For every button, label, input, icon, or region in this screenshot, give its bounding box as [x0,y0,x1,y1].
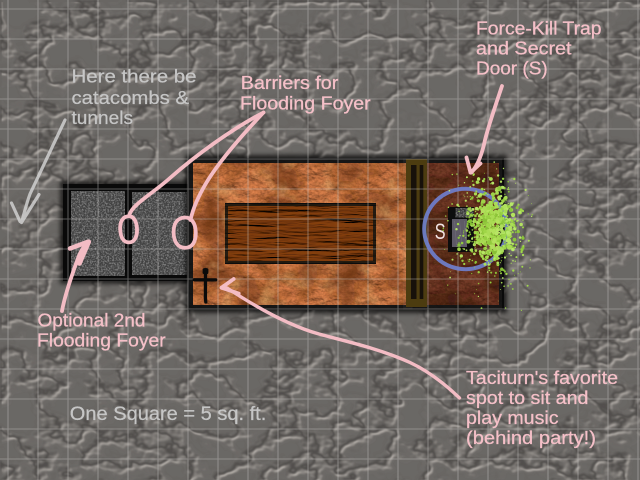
svg-text:play music: play music [466,407,559,428]
svg-text:Force-Kill Trap: Force-Kill Trap [476,17,602,38]
svg-text:S: S [435,219,446,244]
svg-text:Door (S): Door (S) [476,57,548,78]
svg-text:Flooding Foyer: Flooding Foyer [240,93,371,114]
svg-text:tunnels: tunnels [72,107,134,128]
svg-text:(behind party!): (behind party!) [466,427,596,448]
svg-text:Flooding Foyer: Flooding Foyer [37,330,166,351]
svg-text:Taciturn's favorite: Taciturn's favorite [466,367,618,388]
svg-text:Barriers for: Barriers for [241,72,338,93]
svg-text:catacombs &: catacombs & [72,87,190,108]
svg-text:spot to sit and: spot to sit and [466,387,589,408]
svg-text:One Square = 5 sq. ft.: One Square = 5 sq. ft. [70,403,266,425]
svg-text:Here there be: Here there be [72,66,197,87]
svg-text:and Secret: and Secret [476,37,572,58]
svg-text:Optional 2nd: Optional 2nd [38,310,146,331]
